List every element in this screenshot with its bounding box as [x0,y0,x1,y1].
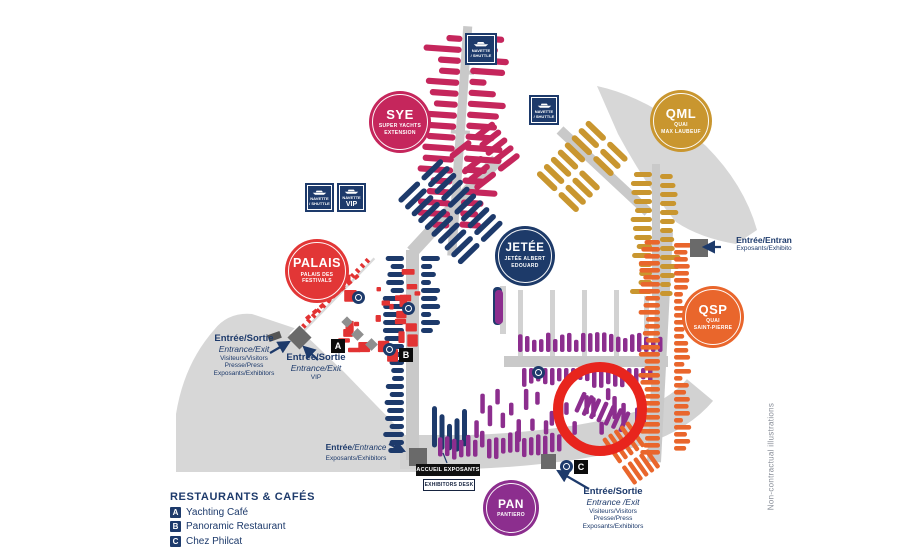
legend-badge-b: B [170,521,181,532]
entrance-south-east-marker [541,454,556,469]
zone-sye-code: SYE [386,108,414,121]
zone-palais-code: PALAIS [293,257,341,270]
legend-item-c: C Chez Philcat [170,536,315,547]
shuttle-sign-west: NAVETTE / SHUTTLE [305,183,334,212]
shuttle-label-line2: / SHUTTLE [471,53,492,58]
zone-qml-code: QML [666,107,696,120]
zone-palais-sub2: FESTIVALS [301,278,334,285]
map-badge-a: A [331,339,345,353]
port-map: SYE SUPER YACHTS EXTENSION QML QUAI MAX … [0,0,916,558]
legend-badge-c: C [170,536,181,547]
shuttle-sign-north: NAVETTE / SHUTTLE [465,33,497,65]
legend-label-b: Panoramic Restaurant [186,521,286,532]
entrance-south-center-label: Entrée/Entrance Exposants/Exhibitors [316,436,396,463]
boat-icon [312,189,327,195]
shuttle-sign-mid: NAVETTE / SHUTTLE [529,95,559,125]
exhibitors-desk-en: EXHIBITORS DESK [423,479,475,491]
zone-pan: PAN PANTIERO [483,480,539,536]
restaurants-legend: RESTAURANTS & CAFÉS A Yachting Café B Pa… [170,491,315,547]
zone-jetee-sub1: JETÉE ALBERT [505,256,546,263]
boat-icon [473,40,489,47]
zone-palais-sub1: PALAIS DES [301,272,334,279]
mooring-icon [560,460,573,473]
mooring-icon [383,343,396,356]
shuttle-label-line1: NAVETTE [534,109,555,114]
zone-sye: SYE SUPER YACHTS EXTENSION [369,91,431,153]
exhibitors-desk-fr: ACCUEIL EXPOSANTS [416,464,480,476]
mooring-icon [532,366,545,379]
zone-pan-sub1: PANTIERO [497,512,525,519]
legend-item-a: A Yachting Café [170,507,315,518]
zone-qsp-sub1: QUAI [694,318,733,325]
zone-palais: PALAIS PALAIS DES FESTIVALS [285,239,349,303]
entrance-south-east-label: Entrée/Sortie Entrance /Exit Visiteurs/V… [564,486,662,531]
zone-jetee-sub2: EDOUARD [505,263,546,270]
entrance-vip-label: Entrée/Sortie Entrance/Exit VIP [268,352,364,381]
zone-jetee: JETÉE JETÉE ALBERT EDOUARD [495,226,555,286]
shuttle-vip-line2: VIP [346,201,357,208]
zone-qml-sub1: QUAI [661,122,701,129]
zone-jetee-code: JETÉE [506,243,545,255]
zone-qml: QML QUAI MAX LAUBEUF [650,90,712,152]
zone-sye-sub1: SUPER YACHTS [379,123,421,130]
legend-item-b: B Panoramic Restaurant [170,521,315,532]
zone-qsp-sub2: SAINT-PIERRE [694,325,733,332]
zone-qml-sub2: MAX LAUBEUF [661,129,701,136]
zone-pan-code: PAN [498,498,524,510]
boat-icon [344,188,359,194]
disclaimer-note: Non-contractual illustrations [767,386,776,528]
shuttle-sign-vip: NAVETTE VIP [337,183,366,212]
legend-title: RESTAURANTS & CAFÉS [170,491,315,503]
zone-sye-sub2: EXTENSION [379,130,421,137]
shuttle-vip-line1: NAVETTE [342,195,360,200]
legend-badge-a: A [170,507,181,518]
shuttle-label-line2: / SHUTTLE [534,114,555,119]
zone-qsp: QSP QUAI SAINT-PIERRE [682,286,744,348]
entrance-east-label: Entrée/Entran Exposants/Exhibito [714,235,814,253]
legend-label-a: Yachting Café [186,507,248,518]
zone-qsp-code: QSP [699,303,728,316]
map-badge-c: C [574,460,588,474]
legend-label-c: Chez Philcat [186,536,242,547]
map-badge-b: B [399,348,413,362]
shuttle-label-line2: / SHUTTLE [309,201,330,206]
boat-icon [537,102,552,108]
mooring-icon [402,302,415,315]
mooring-icon [352,291,365,304]
